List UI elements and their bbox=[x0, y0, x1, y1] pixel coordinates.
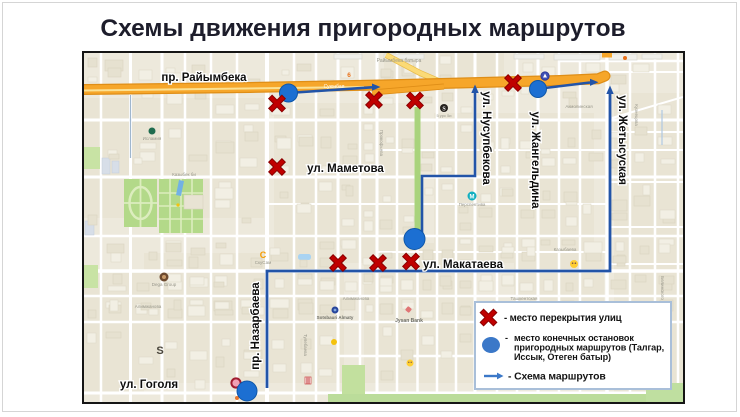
svg-text:Алимжанова: Алимжанова bbox=[343, 296, 370, 301]
svg-text:пр. Райымбека: пр. Райымбека bbox=[161, 72, 247, 84]
svg-text:-: - bbox=[505, 333, 508, 343]
svg-text:Райымбека батыра: Райымбека батыра bbox=[377, 57, 422, 64]
svg-text:Тулебаева: Тулебаева bbox=[303, 334, 308, 357]
svg-text:- Схема маршрутов: - Схема маршрутов bbox=[508, 372, 606, 383]
svg-text:Казыбек би: Казыбек би bbox=[172, 172, 196, 177]
svg-text:Казыбаева: Казыбаева bbox=[554, 247, 577, 252]
svg-text:пригородных маршрутов (Талгар,: пригородных маршрутов (Талгар, bbox=[514, 343, 664, 353]
svg-text:Прокофьева: Прокофьева bbox=[379, 130, 384, 157]
svg-text:S: S bbox=[156, 345, 163, 357]
svg-text:ул. Жангельдина: ул. Жангельдина bbox=[529, 111, 541, 209]
svg-text:Иссык, Отеген батыр): Иссык, Отеген батыр) bbox=[514, 352, 611, 362]
svg-text:Исламия: Исламия bbox=[143, 136, 162, 141]
svg-text:ул. Макатаева: ул. Макатаева bbox=[423, 259, 504, 271]
svg-text:ул. Нусупбекова: ул. Нусупбекова bbox=[480, 91, 492, 185]
svg-text:ул. Маметова: ул. Маметова bbox=[307, 163, 384, 175]
svg-text:пр. Назарбаева: пр. Назарбаева bbox=[250, 282, 262, 370]
svg-text:5 урс 5и: 5 урс 5и bbox=[436, 113, 451, 118]
svg-text:место конечных остановок: место конечных остановок bbox=[514, 333, 634, 343]
svg-text:Алимжанова: Алимжанова bbox=[135, 304, 162, 309]
svg-text:Акмолинская: Акмолинская bbox=[565, 104, 593, 109]
svg-text:ул. Гоголя: ул. Гоголя bbox=[120, 379, 178, 391]
svg-text:Sotsbauri Almaty: Sotsbauri Almaty bbox=[317, 315, 354, 320]
svg-text:Перспектива: Перспектива bbox=[459, 202, 486, 207]
svg-text:M: M bbox=[470, 195, 475, 201]
svg-text:ул. Жетысуская: ул. Жетысуская bbox=[616, 95, 628, 185]
svg-text:- место перекрытия улиц: - место перекрытия улиц bbox=[504, 313, 622, 324]
svg-text:СкуСам: СкуСам bbox=[255, 260, 271, 265]
svg-text:Кузнецова: Кузнецова bbox=[634, 104, 639, 126]
svg-text:Dega Group: Dega Group bbox=[152, 282, 177, 287]
svg-text:Белинского: Белинского bbox=[660, 276, 665, 300]
svg-text:C: C bbox=[260, 250, 267, 260]
svg-text:Jysan Bank: Jysan Bank bbox=[395, 318, 423, 324]
svg-text:6: 6 bbox=[347, 72, 351, 79]
svg-text:Ташкентская: Ташкентская bbox=[511, 296, 538, 301]
